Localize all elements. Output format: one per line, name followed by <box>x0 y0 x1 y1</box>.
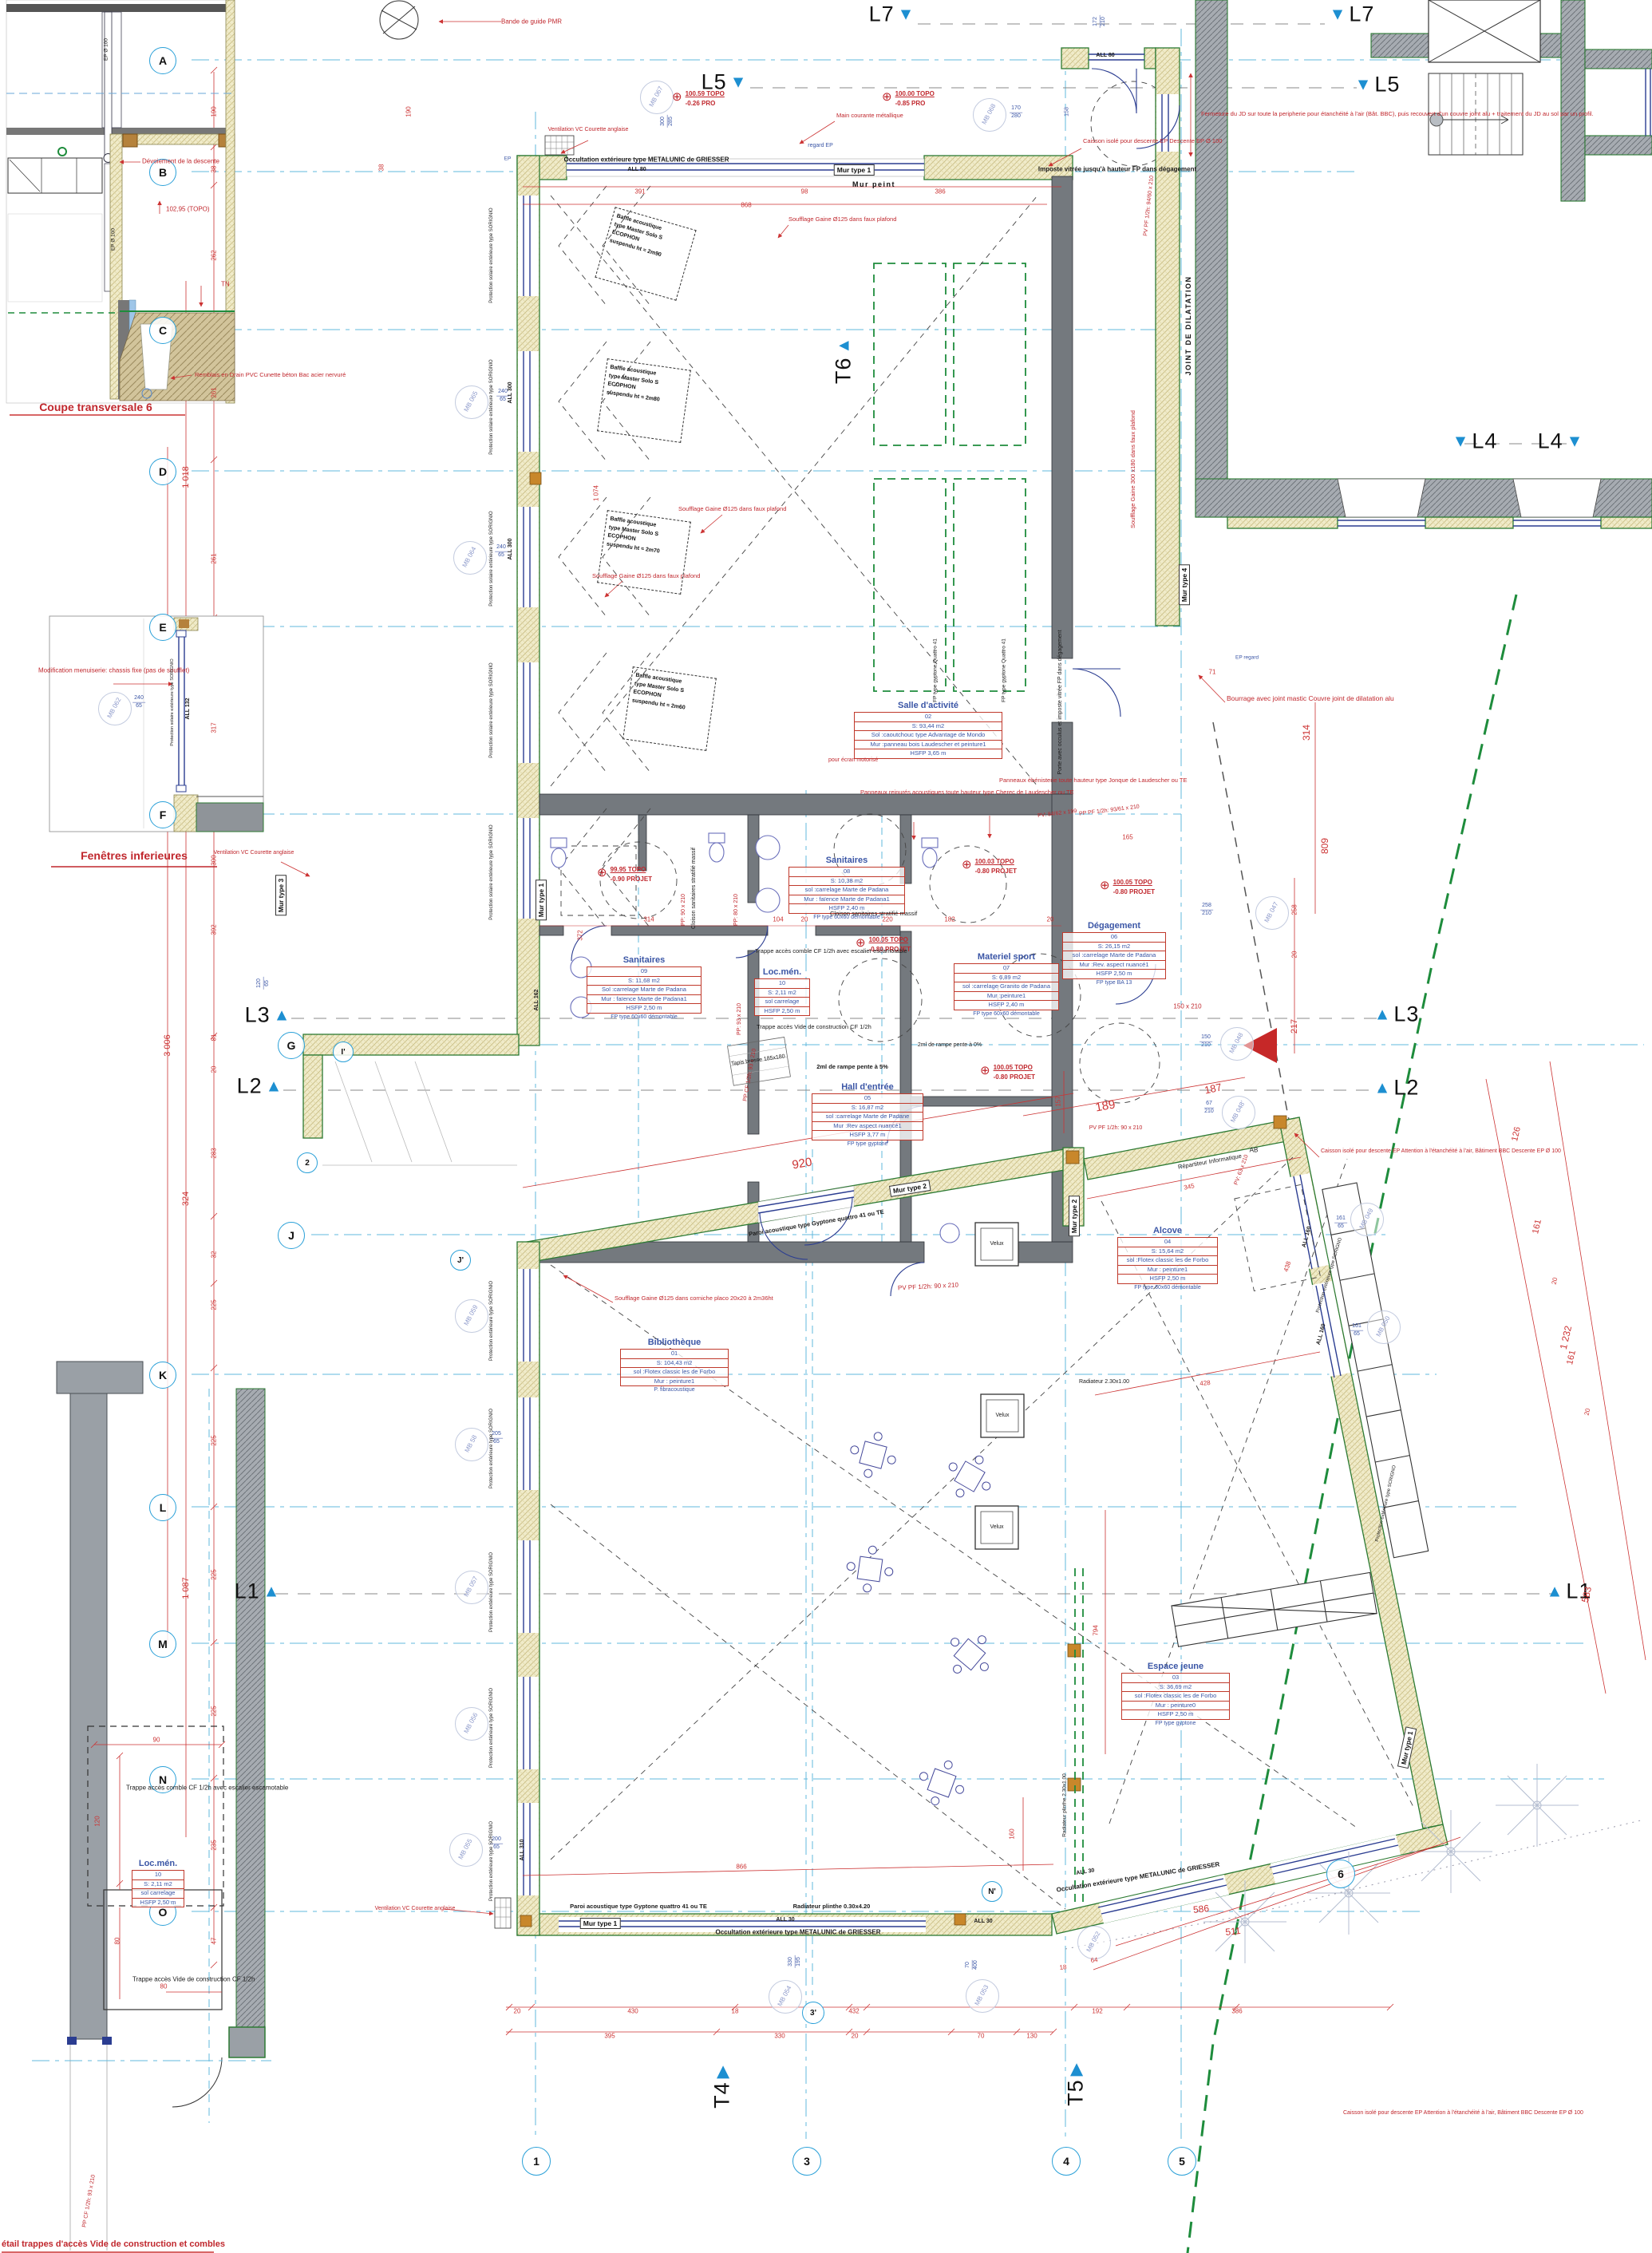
topo-marker: ⊕100.00 TOPO-0.85 PRO <box>882 89 935 109</box>
room-label-bibliotheque: Bibliothèque01S: 104,43 m2sol :Flotex cl… <box>620 1338 729 1393</box>
dimension-label: 511 <box>1225 1925 1241 1938</box>
section-marker-t5: T5▶ <box>1064 2063 1089 2106</box>
room-info-row: S: 10,38 m2 <box>789 876 904 886</box>
room-title: Alcove <box>1117 1226 1218 1235</box>
room-title: Dégagement <box>1062 921 1166 931</box>
annotation: Paroi acoustique type Gyptone quattro 41… <box>570 1903 707 1911</box>
marker-label: L3 <box>1393 1002 1419 1027</box>
wall-type-label: Mur type 1 <box>1397 1727 1417 1769</box>
annotation: PP CF 1/2h: 93 x 210 <box>81 2174 97 2227</box>
annotation: EP <box>504 155 512 162</box>
annotation: Fermeture du JD sur toute la peripherie … <box>1201 110 1594 119</box>
topo-line2: -0.26 PRO <box>686 99 725 109</box>
dimension-label: 80 <box>160 1983 168 1990</box>
annotation: 2ml de rampe pente à 5% <box>816 1063 888 1072</box>
annotation: PV PF 1/2h: 90 x 210 <box>1089 1125 1143 1132</box>
marker-triangle-icon: ▼ <box>1452 433 1469 450</box>
section-marker-l3: ▲L3 <box>1374 1002 1420 1027</box>
marker-triangle-icon: ▲ <box>1374 1080 1391 1097</box>
annotation: Protection extérieure type SORIGNIO <box>488 1281 495 1361</box>
dimension-label: 47 <box>211 1938 218 1945</box>
marker-triangle-icon: ▼ <box>1567 433 1583 450</box>
topo-line1: 100.05 TOPO <box>994 1063 1035 1073</box>
size-bottom: 65 <box>1350 1331 1363 1338</box>
annotation: ALL 160 <box>1301 1226 1314 1249</box>
room-title: Materiel sport <box>954 952 1059 962</box>
marker-triangle-icon: ▲ <box>274 1007 290 1024</box>
room-info-row: Mur : peinture1 <box>1118 1265 1217 1275</box>
room-info-row: 08 <box>789 868 904 876</box>
velux-label: Velux <box>990 1524 1003 1532</box>
dimension-label: 20 <box>1583 1408 1592 1417</box>
topo-values: 100.05 TOPO-0.80 PROJET <box>994 1063 1035 1082</box>
section-marker-l7: ▼L7 <box>1330 2 1375 27</box>
room-foot-note: FP type BA 13 <box>1062 980 1166 986</box>
size-top: 172 <box>1093 15 1101 28</box>
room-label-espace-jeune: Espace jeune03S: 36,69 m2sol :Flotex cla… <box>1121 1662 1230 1726</box>
section-marker-l1: L1▲ <box>235 1579 280 1604</box>
wall-type-label: Mur type 2 <box>1069 1196 1080 1237</box>
room-info-row: 01 <box>621 1350 728 1358</box>
annotation: PV PF 1/2h: 90 x 210 <box>898 1280 959 1292</box>
room-title: Espace jeune <box>1121 1662 1230 1671</box>
dimension-label: 317 <box>211 722 218 733</box>
room-info-row: 10 <box>132 1871 184 1879</box>
annotation: Radiateur plinthe 0.30x4.20 <box>793 1903 871 1911</box>
room-info-row: HSFP 2,50 m <box>1118 1274 1217 1283</box>
dimension-label: 314 <box>643 916 654 923</box>
marker-triangle-icon: ▲ <box>266 1078 283 1095</box>
size-top: 170 <box>1010 105 1022 113</box>
annotation: Soufflage Gaine Ø125 dans faux plafond <box>678 505 786 514</box>
marker-label: L7 <box>869 2 895 27</box>
dimension-label: 160 <box>1009 1828 1016 1839</box>
window-size-tag: 300285 <box>660 115 675 128</box>
annotation: Bande de guide PMR <box>501 17 562 26</box>
grid-bubble-1: 1 <box>522 2147 551 2176</box>
annotation: PV: 84/62 x 199 <box>1037 808 1077 820</box>
dimension-label: 430 <box>627 2008 638 2015</box>
dimension-label: 391 <box>634 188 645 196</box>
baffle-note: Baffle acoustiquetype Master Solo SECOPH… <box>622 666 717 751</box>
marker-triangle-icon: ▼ <box>1355 77 1372 93</box>
marker-triangle-icon: ▶ <box>714 2065 731 2078</box>
detail-caption-fenetres: Fenêtres inferieures <box>81 849 188 862</box>
room-info-box: 06S: 26,15 m2sol :carrelage Marte de Pad… <box>1062 932 1166 979</box>
annotation: Tapis brosse 185x180 <box>731 1053 786 1068</box>
marker-label: L2 <box>237 1074 263 1099</box>
velux-label: Velux <box>990 1240 1003 1248</box>
room-foot-note: FP type 60x60 démontable <box>587 1014 702 1020</box>
dimension-label: 161 <box>1531 1219 1543 1235</box>
section-marker-l2: ▲L2 <box>1374 1076 1420 1101</box>
room-info-row: 04 <box>1118 1238 1217 1247</box>
grid-bubble-c: C <box>149 317 176 344</box>
topo-cross-icon: ⊕ <box>672 91 682 103</box>
dimension-label: 20 <box>852 2033 859 2040</box>
grid-bubble-e: E <box>149 614 176 641</box>
annotation: Soufflage Gaine 300 x180 dans faux plafo… <box>1129 410 1138 528</box>
dimension-label: 262 <box>211 250 218 260</box>
room-info-row: S: 16,87 m2 <box>812 1103 923 1113</box>
size-bottom: 210 <box>1204 1109 1214 1116</box>
room-info-row: sol :carrelage Marte de Padana <box>1063 951 1165 960</box>
room-foot-note: FP type gyptone <box>1121 1721 1230 1726</box>
dimension-label: 190 <box>211 106 218 117</box>
annotation: ALL 300 <box>507 381 515 403</box>
room-info-row: HSFP 2,50 m <box>755 1006 809 1016</box>
size-top: 120 <box>256 977 264 990</box>
size-bottom: 400 <box>973 1960 980 1970</box>
annotation: Cloison sanitaires stratifié massif <box>830 910 917 919</box>
annotation: Occultation extérieure type METALUNIC de… <box>563 155 729 164</box>
dimension-label: 81 <box>211 1034 218 1042</box>
annotation: 102,95 (TOPO) <box>166 204 210 213</box>
dimension-label: 258 <box>1291 904 1298 915</box>
room-info-row: sol carrelage <box>132 1888 184 1898</box>
dimension-label: 345 <box>1184 1182 1196 1191</box>
annotation: Trappe accès Vide de construction CF 1/2… <box>132 1974 255 1983</box>
dimension-label: 126 <box>1510 1126 1523 1143</box>
section-marker-l2: L2▲ <box>237 1074 283 1099</box>
marker-label: T6 <box>832 358 856 385</box>
topo-values: 100.05 TOPO-0.80 PROJET <box>1113 878 1155 897</box>
dimension-label: 20 <box>801 916 808 923</box>
annotation: pour écran motorisé <box>828 757 878 765</box>
topo-cross-icon: ⊕ <box>980 1065 990 1077</box>
dimension-label: 330 <box>774 2033 785 2040</box>
topo-cross-icon: ⊕ <box>962 859 972 871</box>
window-size-tag: 67210 <box>1204 1101 1214 1116</box>
room-label-sanitaires-09: Sanitaires09S: 11,68 m2Sol :carrelage Ma… <box>587 955 702 1020</box>
room-info-row: S: 6,89 m2 <box>954 973 1058 982</box>
annotation: PP PF 1/2h: 93/61 x 210 <box>1079 803 1140 818</box>
grid-bubble-d: D <box>149 458 176 485</box>
wall-type-label: Mur type 1 <box>834 164 875 176</box>
dimension-label: 38 <box>378 164 385 172</box>
annotation: Panneaux ébénisterie toute hauteur type … <box>999 777 1187 785</box>
dimension-label: 225 <box>211 1706 218 1716</box>
room-info-row: sol :Flotex classic les de Forbo <box>1118 1255 1217 1265</box>
topo-values: 100.00 TOPO-0.85 PRO <box>895 89 935 109</box>
annotation: Remblais en Drain PVC Cunette béton Bac … <box>195 371 346 380</box>
annotation: Trappe accès Vide de construction CF 1/2… <box>757 1023 871 1032</box>
section-marker-l7: L7▼ <box>869 2 915 27</box>
annotation: PV PF 1/2h: 94/60 x 210 <box>1142 176 1156 237</box>
detail-caption-trappes: étail trappes d'accès Vide de constructi… <box>2 2239 225 2249</box>
room-info-box: 03S: 36,69 m2sol :Flotex classic les de … <box>1121 1673 1230 1720</box>
dimension-label: 866 <box>736 1864 746 1871</box>
marker-triangle-icon: ▲ <box>1547 1583 1563 1600</box>
dimension-label: 217 <box>1290 1019 1299 1034</box>
annotation: Protection solaire extérieure type SORIG… <box>488 824 495 919</box>
annotation: Porte avec occulus et imposte vitrée FP … <box>1057 630 1065 774</box>
grid-bubble-m: M <box>149 1630 176 1658</box>
room-info-row: S: 11,68 m2 <box>587 976 701 986</box>
annotation: Imposte vitrée jusqu'à hauteur FP dans d… <box>1038 164 1196 173</box>
marker-triangle-icon: ▶ <box>1068 2063 1085 2076</box>
room-info-row: S: 93,44 m2 <box>855 721 1002 731</box>
window-size-tag: 330195 <box>788 1955 803 1968</box>
annotation: regard EP <box>808 142 833 150</box>
topo-line1: 100.59 TOPO <box>686 89 725 99</box>
size-bottom: 65 <box>495 552 508 559</box>
room-info-row: sol :Flotex classic les de Forbo <box>1122 1691 1229 1701</box>
annotation: Protection extérieure type SCRIGNO <box>1374 1464 1398 1542</box>
dimension-label: 20 <box>1551 1277 1559 1286</box>
room-info-row: sol :carrelage Granito de Padana <box>954 982 1058 991</box>
room-info-row: sol :carrelage Marte de Padana <box>789 885 904 895</box>
annotation: Soufflage Gaine Ø125 dans corniche placo… <box>615 1294 773 1303</box>
dimension-label: 395 <box>604 2033 615 2040</box>
topo-marker: ⊕100.05 TOPO-0.80 PROJET <box>980 1063 1035 1082</box>
room-info-row: 09 <box>587 967 701 976</box>
topo-line1: 100.03 TOPO <box>975 857 1017 867</box>
dimension-label: 104 <box>773 916 783 923</box>
room-info-row: HSFP 2,40 m <box>954 1000 1058 1010</box>
annotation: ALL 300 <box>507 538 515 559</box>
baffle-note: Baffle acoustiquetype Master Solo SECOPH… <box>597 358 691 443</box>
topo-line2: -0.80 PROJET <box>994 1073 1035 1082</box>
topo-values: 100.59 TOPO-0.26 PRO <box>686 89 725 109</box>
wall-type-label: Mur type 3 <box>275 876 287 916</box>
dimension-label: 225 <box>211 1435 218 1445</box>
room-title: Sanitaires <box>587 955 702 965</box>
size-bottom: 65 <box>1334 1223 1347 1231</box>
window-size-tag: 12065 <box>256 977 271 990</box>
annotation: Protection extérieure type SCRIGNO <box>1315 1237 1345 1314</box>
annotation: Caisson isolé pour descente EP Attention… <box>1321 1148 1561 1156</box>
dimension-label: 386 <box>935 188 945 196</box>
room-info-box: 01S: 104,43 m2sol :Flotex classic les de… <box>620 1349 729 1386</box>
topo-line1: 100.05 TOPO <box>1113 878 1155 887</box>
dimension-label: 187 <box>1203 1081 1223 1096</box>
annotation: PP: 93 x 210 <box>736 1003 744 1035</box>
annotation: Ventilation VC Courette anglaise <box>214 849 294 857</box>
grid-bubble-ip: I' <box>333 1042 354 1062</box>
topo-line1: 99.95 TOPO <box>611 865 652 875</box>
room-title: Hall d'entrée <box>812 1082 923 1092</box>
annotation: Cloison sanitaires stratifié massif <box>690 848 698 929</box>
section-marker-l4: L4▼ <box>1538 429 1583 454</box>
room-label-salle-activite: Salle d'activité02S: 93,44 m2Sol :caoutc… <box>854 701 1002 759</box>
grid-bubble-jp: J' <box>450 1250 471 1271</box>
dimension-label: 225 <box>211 1299 218 1310</box>
section-marker-l5: ▼L5 <box>1355 73 1401 97</box>
dimension-label: 432 <box>848 2008 859 2015</box>
section-marker-t4: T4▶ <box>710 2065 735 2109</box>
topo-marker: ⊕99.95 TOPO-0.90 PROJET <box>597 865 652 884</box>
room-info-row: Mur :Rev. aspect nuancé1 <box>1063 960 1165 970</box>
wall-type-label: Mur type 1 <box>536 880 547 921</box>
room-info-row: 02 <box>855 713 1002 721</box>
room-label-loc-men-detail: Loc.mén.10S: 2,11 m2sol carrelageHSFP 2,… <box>132 1859 184 1907</box>
plain-label: JOINT DE DILATATION <box>1184 276 1192 376</box>
dimension-label: 182 <box>944 916 954 923</box>
room-info-box: 05S: 16,87 m2sol :carrelage Marte de Pad… <box>812 1093 923 1140</box>
topo-marker: ⊕100.03 TOPO-0.80 PROJET <box>962 857 1017 876</box>
dimension-label: 70 <box>978 2033 985 2040</box>
dimension-label: 80 <box>114 1938 121 1945</box>
annotation: ALL 310 <box>519 1839 527 1860</box>
annotation: Ventilation VC Courette anglaise <box>375 1905 456 1913</box>
annotation: ALL 80 <box>1096 52 1114 60</box>
dimension-label: 809 <box>1319 838 1330 854</box>
annotation: Protection extérieure type SORIGNIO <box>488 1688 495 1768</box>
room-info-box: 09S: 11,68 m2Sol :carrelage Marte de Pad… <box>587 966 702 1014</box>
window-size-tag: 172210 <box>1093 15 1108 28</box>
dimension-label: 20 <box>1291 951 1298 959</box>
annotation: PP: 90 x 210 <box>680 894 688 926</box>
marker-label: L4 <box>1472 429 1497 454</box>
dimension-label: 283 <box>211 1148 218 1158</box>
topo-cross-icon: ⊕ <box>597 867 607 879</box>
dimension-label: 428 <box>1199 1379 1211 1387</box>
window-size-tag: 158 <box>1065 107 1072 117</box>
room-info-row: 05 <box>812 1094 923 1103</box>
grid-bubble-3: 3 <box>792 2147 821 2176</box>
annotation: Trappe accès comble CF 1/2h avec escalie… <box>126 1783 288 1792</box>
annotation: EP regard <box>1235 654 1259 661</box>
dimension-label: 225 <box>211 1569 218 1579</box>
grid-bubble-4: 4 <box>1052 2147 1081 2176</box>
plain-label: Mur peint <box>852 180 895 188</box>
annotation: Trappe accès comble CF 1/2h avec escalie… <box>755 947 907 956</box>
window-size-tag: 258210 <box>1200 903 1213 918</box>
dimension-label: 235 <box>211 1840 218 1850</box>
dimension-label: 161 <box>1565 1350 1578 1366</box>
dimension-label: 314 <box>1301 725 1312 741</box>
dimension-label: 71 <box>1209 669 1216 676</box>
room-info-row: S: 2,11 m2 <box>132 1879 184 1889</box>
window-size-tag: 16165 <box>1334 1215 1347 1231</box>
dimension-label: 386 <box>1231 2008 1242 2015</box>
topo-line2: -0.85 PRO <box>895 99 935 109</box>
room-info-row: 10 <box>755 979 809 988</box>
dimension-label: 157 <box>1055 1096 1062 1106</box>
annotation: ALL 160 <box>1315 1323 1328 1346</box>
room-label-materiel-sport: Materiel sport07S: 6,89 m2sol :carrelage… <box>954 952 1059 1017</box>
room-info-box: 07S: 6,89 m2sol :carrelage Granito de Pa… <box>954 963 1059 1010</box>
marker-triangle-icon: ▲ <box>263 1583 280 1600</box>
size-bottom: 210 <box>1101 15 1108 28</box>
room-info-row: Mur : peinture0 <box>1122 1701 1229 1710</box>
detail-caption-coupe: Coupe transversale 6 <box>39 401 152 413</box>
grid-bubble-f: F <box>149 801 176 828</box>
room-info-row: sol :carrelage Marte de Padane <box>812 1112 923 1121</box>
window-size-tag: 150210 <box>1199 1034 1212 1049</box>
room-title: Salle d'activité <box>854 701 1002 710</box>
topo-line1: 100.05 TOPO <box>869 935 911 945</box>
annotation: Dévoiement de la descente <box>142 156 219 165</box>
annotation: Radiateur 2.30x1.00 <box>1079 1378 1129 1386</box>
annotation: Modification menuiserie: chassis fixe (p… <box>38 666 189 674</box>
dimension-label: 920 <box>791 1155 813 1172</box>
dimension-label: 130 <box>1026 2033 1037 2040</box>
room-info-row: S: 15,64 m2 <box>1118 1247 1217 1256</box>
topo-line2: -0.80 PROJET <box>975 867 1017 876</box>
annotation: Soufflage Gaine Ø125 dans faux plafond <box>788 215 896 224</box>
dimension-label: 20 <box>514 2008 521 2015</box>
annotation: ALL 30 <box>1076 1867 1095 1877</box>
room-info-row: Mur :peinture1 <box>954 991 1058 1001</box>
annotation: Caisson isolé pour descente EP Descente … <box>1083 137 1222 146</box>
annotation: ALL 80 <box>627 166 646 174</box>
room-info-box: 10S: 2,11 m2sol carrelageHSFP 2,50 m <box>754 978 810 1016</box>
dimension-label: 18 <box>732 2008 739 2015</box>
baffle-note: Baffle acoustiquetype Master Solo SECOPH… <box>595 207 696 301</box>
annotation: EP Ø 100 <box>109 228 117 251</box>
labels-layer: Coupe transversale 6 Fenêtres inferieure… <box>0 0 1652 2253</box>
annotation: Protection solaire extérieure type SORIG… <box>488 511 495 606</box>
dimension-label: 18 <box>1059 1963 1067 1971</box>
annotation: FP type gyptone Quattro 41 <box>931 638 939 702</box>
topo-line1: 100.00 TOPO <box>895 89 935 99</box>
window-size-tag: 170280 <box>1010 105 1022 121</box>
room-info-row: Sol :caoutchouc type Advantage de Mondo <box>855 730 1002 740</box>
velux-label: Velux <box>995 1412 1009 1420</box>
topo-values: 99.95 TOPO-0.90 PROJET <box>611 865 652 884</box>
annotation: Protection extérieure type SORIGNIO <box>488 1409 495 1488</box>
room-title: Sanitaires <box>788 856 905 865</box>
room-info-row: HSFP 2,50 m <box>587 1003 701 1013</box>
dimension-label: 20 <box>211 1066 218 1073</box>
annotation: Protection extérieure type SORIGNIO <box>488 1552 495 1632</box>
room-label-loc-men: Loc.mén.10S: 2,11 m2sol carrelageHSFP 2,… <box>754 967 810 1016</box>
grid-bubble-2: 2 <box>297 1152 318 1173</box>
room-info-row: Mur : faïence Marte de Padana1 <box>587 994 701 1004</box>
marker-label: L5 <box>1374 73 1400 97</box>
annotation: Protection solaire extérieure type SORIG… <box>170 658 176 745</box>
size-top: 161 <box>1350 1323 1363 1331</box>
annotation: Bourrage avec joint mastic Couvre joint … <box>1227 694 1394 704</box>
room-info-row: Mur :panneau bois Laudescher et peinture… <box>855 740 1002 749</box>
size-top: 330 <box>788 1955 796 1968</box>
topo-marker: ⊕100.05 TOPO-0.80 PROJET <box>1100 878 1155 897</box>
dimension-label: 1 018 <box>181 466 191 488</box>
grid-bubble-5: 5 <box>1168 2147 1196 2176</box>
size-bottom: 210 <box>1200 911 1213 918</box>
dimension-label: 261 <box>211 553 218 563</box>
marker-label: L3 <box>245 1003 271 1028</box>
dimension-label: 90 <box>153 1737 160 1744</box>
room-info-row: S: 26,15 m2 <box>1063 942 1165 951</box>
grid-bubble-g: G <box>278 1032 305 1059</box>
grid-bubble-k: K <box>149 1362 176 1389</box>
dimension-label: 868 <box>741 202 751 209</box>
room-label-degagement: Dégagement06S: 26,15 m2sol :carrelage Ma… <box>1062 921 1166 986</box>
room-info-box: 02S: 93,44 m2Sol :caoutchouc type Advant… <box>854 712 1002 759</box>
annotation: Occultation extérieure type METALUNIC de… <box>715 1927 880 1936</box>
dimension-label: 438 <box>1282 1260 1293 1272</box>
dimension-label: 120 <box>94 1816 101 1826</box>
room-info-row: S: 36,69 m2 <box>1122 1682 1229 1692</box>
grid-bubble-l: L <box>149 1494 176 1521</box>
topo-values: 100.03 TOPO-0.80 PROJET <box>975 857 1017 876</box>
dimension-label: 189 <box>1094 1097 1116 1114</box>
grid-bubble-6: 6 <box>1326 1860 1355 1888</box>
annotation: Protection extérieure type SORIGNIO <box>488 1821 495 1901</box>
room-info-box: 10S: 2,11 m2sol carrelageHSFP 2,50 m <box>132 1870 184 1907</box>
topo-cross-icon: ⊕ <box>1100 879 1110 891</box>
room-info-row: Mur : faïence Marte de Padana1 <box>789 895 904 904</box>
marker-label: L1 <box>235 1579 260 1604</box>
room-info-row: 07 <box>954 964 1058 973</box>
room-foot-note: FP type 60x60 démontable <box>954 1011 1059 1017</box>
annotation: FP type gyptone Quattro 41 <box>1000 638 1007 702</box>
marker-triangle-icon: ▲ <box>1374 1006 1391 1023</box>
dimension-label: 38 <box>211 166 218 173</box>
